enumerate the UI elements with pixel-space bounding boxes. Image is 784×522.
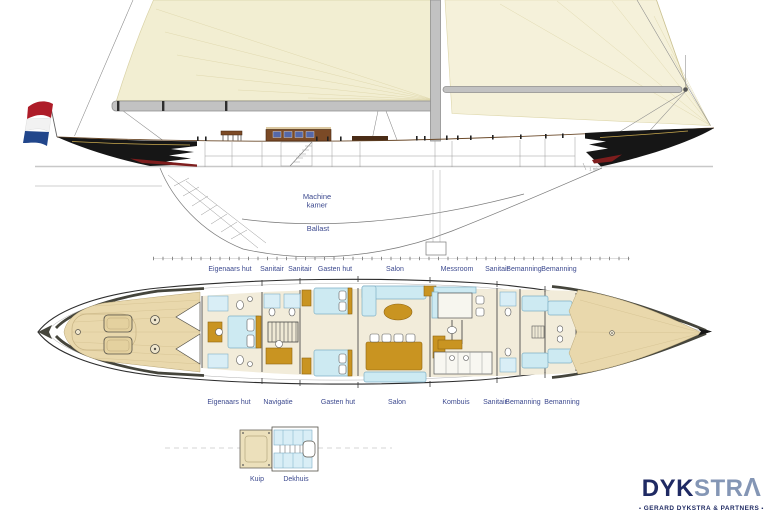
jib-sail — [445, 0, 711, 126]
toilet — [237, 301, 244, 310]
hull-stern — [57, 137, 197, 167]
deck-hatch-plan — [104, 315, 132, 332]
waterline — [35, 163, 713, 186]
shower — [500, 292, 516, 306]
plan-labels-lower: Eigenaars hut Navigatie Gasten hut Salon… — [207, 399, 579, 406]
deckhouse-window — [306, 132, 314, 138]
deckhouse-window — [273, 132, 281, 138]
dining-table — [366, 342, 422, 370]
room-label: Bemanning — [544, 399, 580, 406]
toilet — [505, 348, 511, 356]
dining-chair — [394, 334, 403, 342]
deckhouse-window — [284, 132, 292, 138]
owners-bed — [228, 316, 260, 348]
logo-name-final: Λ — [743, 472, 761, 502]
mast-plan — [448, 327, 457, 334]
propeller-box — [426, 242, 446, 255]
sink — [248, 297, 253, 302]
deck-hatch — [352, 136, 388, 141]
yacht-drawing-page: Machine kamer Ballast 1 mtr Eigenaars hu… — [0, 0, 784, 522]
shower — [208, 296, 228, 311]
dutch-flag — [23, 101, 57, 146]
deck-fitting — [76, 330, 81, 335]
machine-kamer-label-line2: kamer — [307, 201, 328, 210]
staysail-boom — [443, 87, 682, 93]
crew-bunk — [548, 301, 572, 315]
mess-chair — [476, 308, 484, 316]
logo-tagline: ▪ GERARD DYKSTRA & PARTNERS ▪ — [639, 505, 764, 512]
ballast-label: Ballast — [307, 224, 330, 233]
wardrobe — [302, 290, 311, 306]
dining-chair — [382, 334, 391, 342]
shower — [208, 354, 228, 368]
room-label: Sanitair — [483, 399, 507, 406]
guest-bed — [314, 350, 352, 376]
kuip-label: Kuip — [250, 476, 264, 483]
room-label: Navigatie — [263, 399, 292, 406]
hull-bow — [585, 128, 714, 167]
toilet — [237, 356, 244, 365]
galley-sink — [464, 356, 469, 361]
boom-end-fitting — [683, 87, 688, 92]
companionway-hood — [303, 441, 315, 457]
logo-tagline-text: GERARD DYKSTRA & PARTNERS — [644, 505, 759, 512]
mess-table — [438, 293, 472, 318]
crew-bunk — [548, 349, 572, 363]
sink — [248, 362, 253, 367]
dining-chair — [370, 334, 379, 342]
dining-bench — [364, 372, 426, 382]
room-label: Gasten hut — [318, 266, 352, 273]
skylight — [221, 131, 242, 141]
room-label: Gasten hut — [321, 399, 355, 406]
shower — [264, 294, 280, 308]
logo-name: DYKSTRΛ — [639, 472, 764, 503]
section-view: Kuip Dekhuis — [165, 427, 392, 483]
companionway-stairs — [268, 322, 298, 342]
coffee-table — [384, 304, 412, 320]
shower — [500, 358, 516, 372]
room-label: Salon — [386, 266, 404, 273]
dining-chair — [406, 334, 415, 342]
dekhuis-label: Dekhuis — [283, 476, 309, 483]
deckhouse-profile — [266, 127, 331, 141]
dykstra-logo: DYKSTRΛ ▪ GERARD DYKSTRA & PARTNERS ▪ — [639, 472, 764, 512]
main-mast — [431, 0, 441, 141]
messroom — [432, 287, 484, 318]
room-label: Sanitair — [260, 266, 284, 273]
sink — [557, 336, 563, 342]
toilet — [505, 308, 511, 316]
deckhouse-window — [295, 132, 303, 138]
plan-labels-upper: Eigenaars hut Sanitair Sanitair Gasten h… — [208, 266, 576, 273]
main-sail — [117, 0, 438, 101]
yacht-drawing-svg: Machine kamer Ballast 1 mtr Eigenaars hu… — [0, 0, 784, 522]
galley-island — [438, 340, 462, 349]
logo-name-light: STR — [694, 475, 744, 502]
nav-chair — [276, 341, 283, 348]
main-boom — [112, 101, 434, 111]
crew-bunk — [522, 296, 548, 311]
waterline-mark-label: 1 mtr — [589, 167, 599, 172]
deck-hatch-plan — [104, 337, 132, 354]
galley-sink — [450, 356, 455, 361]
galley-counter — [434, 352, 492, 374]
underwater-profile — [160, 168, 602, 257]
room-label: Bemanning — [506, 266, 542, 273]
foredeck — [569, 290, 712, 374]
logo-name-dark: DYK — [642, 475, 694, 502]
sink — [557, 326, 563, 332]
mess-chair — [476, 296, 484, 304]
cockpit-section — [240, 430, 272, 468]
guest-bed — [314, 288, 352, 314]
deckhouse-section — [272, 427, 318, 471]
salon-sofa — [362, 286, 376, 316]
room-label: Kombuis — [442, 399, 470, 406]
room-label: Sanitair — [288, 266, 312, 273]
room-label: Salon — [388, 399, 406, 406]
crew-bunk — [522, 353, 548, 368]
shower — [284, 294, 300, 308]
room-label: Messroom — [441, 266, 474, 273]
room-label: Bemanning — [505, 399, 541, 406]
room-label: Eigenaars hut — [208, 266, 251, 273]
wardrobe — [302, 358, 311, 374]
room-label: Eigenaars hut — [207, 399, 250, 406]
nav-desk — [266, 348, 292, 364]
plan-view: Eigenaars hut Sanitair Sanitair Gasten h… — [38, 266, 712, 406]
room-label: Bemanning — [541, 266, 577, 273]
logo-tagline-mark-right: ▪ — [762, 506, 764, 512]
profile-view: Machine kamer Ballast 1 mtr — [23, 0, 714, 257]
toilet — [269, 308, 275, 316]
logo-tagline-mark-left: ▪ — [639, 506, 641, 512]
toilet — [289, 308, 295, 316]
